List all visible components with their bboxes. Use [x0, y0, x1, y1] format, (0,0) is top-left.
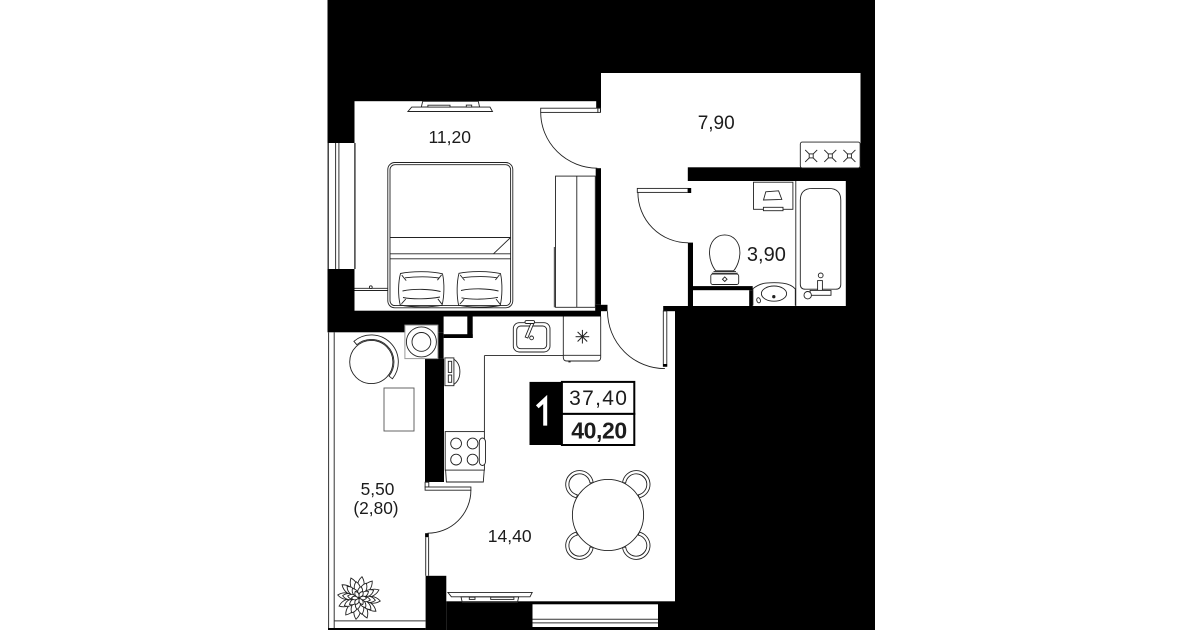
svg-text:14,40: 14,40: [488, 526, 532, 546]
svg-text:40,20: 40,20: [571, 418, 627, 444]
svg-text:3,90: 3,90: [747, 244, 786, 266]
svg-text:37,40: 37,40: [569, 387, 628, 410]
svg-text:5,50: 5,50: [361, 479, 395, 499]
svg-text:(2,80): (2,80): [353, 498, 398, 518]
svg-text:7,90: 7,90: [698, 113, 735, 134]
svg-text:11,20: 11,20: [428, 127, 471, 147]
